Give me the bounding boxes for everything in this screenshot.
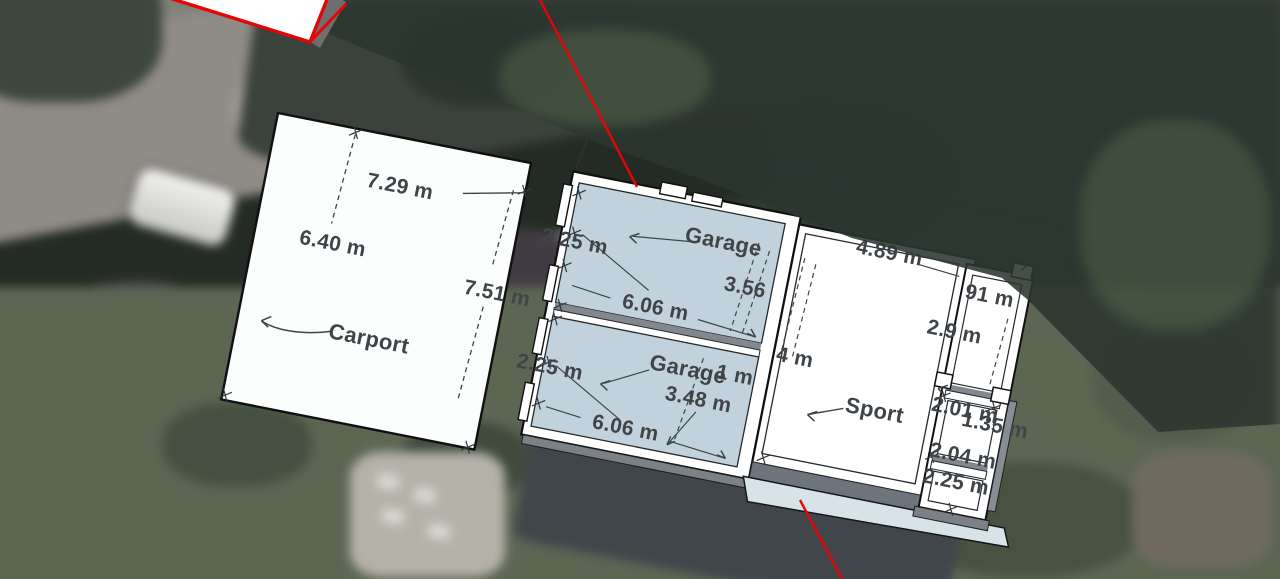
- aerial-site-plan-view: 7.29 m 6.40 m 7.51 m Carport 13.58 m 2.2…: [0, 0, 1280, 579]
- property-boundary-line: [540, 0, 842, 579]
- red-outlined-building: [150, 0, 330, 42]
- boundary-layer: [0, 0, 1280, 579]
